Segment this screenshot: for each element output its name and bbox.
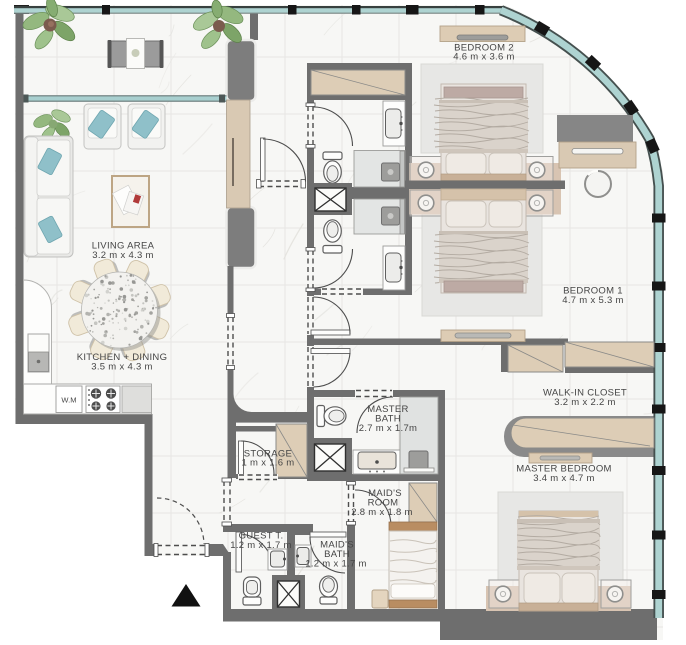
svg-text:3.2 m x 4.3 m: 3.2 m x 4.3 m [92, 250, 153, 261]
svg-text:2.7 m x 1.7m: 2.7 m x 1.7m [359, 423, 418, 434]
svg-text:1.2 m x 1.7 m: 1.2 m x 1.7 m [305, 559, 366, 570]
svg-text:4.7 m x 5.3 m: 4.7 m x 5.3 m [562, 295, 623, 306]
svg-text:1.2 m x 1.7 m: 1.2 m x 1.7 m [230, 540, 291, 551]
svg-text:W.M: W.M [61, 396, 76, 405]
svg-text:4.6 m x 3.6 m: 4.6 m x 3.6 m [453, 52, 514, 63]
svg-text:3.2 m x 2.2 m: 3.2 m x 2.2 m [554, 397, 615, 408]
svg-text:3.4 m x 4.7 m: 3.4 m x 4.7 m [533, 473, 594, 484]
svg-text:1 m x 1.6 m: 1 m x 1.6 m [242, 458, 295, 469]
svg-text:3.5 m x 4.3 m: 3.5 m x 4.3 m [91, 362, 152, 373]
svg-text:2.8 m x 1.8 m: 2.8 m x 1.8 m [351, 507, 412, 518]
